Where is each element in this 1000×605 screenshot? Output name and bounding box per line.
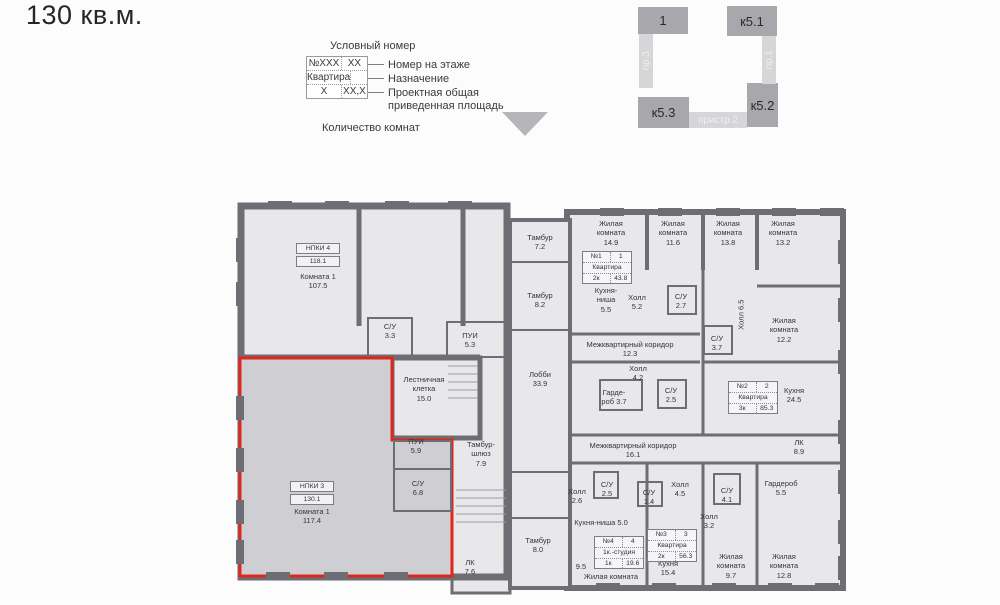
tag-num: №3 bbox=[648, 530, 676, 540]
tag-num: №1 bbox=[583, 252, 611, 262]
room-label: ЛК 8.9 bbox=[764, 438, 834, 457]
tag-designation: Квартира bbox=[583, 263, 631, 274]
tag-num: №4 bbox=[595, 537, 623, 547]
floorplan-drawing bbox=[0, 0, 1000, 605]
room-label: ПУИ 5.9 bbox=[381, 437, 451, 456]
room-label: ПУИ 5.3 bbox=[435, 331, 505, 350]
room-label: Жилая комната 13.2 bbox=[748, 219, 818, 247]
room-label: Тамбур 8.0 bbox=[503, 536, 573, 555]
room-label: Лестничная клетка 15.0 bbox=[389, 375, 459, 403]
tag-rooms: 3к bbox=[729, 404, 757, 414]
tag-designation: 1к.-студия bbox=[595, 548, 643, 559]
unit-area: 118.1 bbox=[296, 256, 340, 267]
room-label: Комната 1 107.5 bbox=[283, 272, 353, 291]
room-label: С/У 6.8 bbox=[383, 479, 453, 498]
tag-rooms: 2к bbox=[648, 552, 676, 562]
tag-count: 3 bbox=[676, 530, 696, 540]
tag-count: 4 bbox=[623, 537, 643, 547]
tag-area: 43.8 bbox=[611, 274, 631, 284]
tag-area: 56.3 bbox=[676, 552, 696, 562]
floorplan-page: 130 кв.м. Условный номер №XXX XX Квартир… bbox=[0, 0, 1000, 605]
tag-count: 1 bbox=[611, 252, 631, 262]
apartment-tag-3: №33 Квартира 2к56.3 bbox=[647, 529, 697, 562]
unit-tag-npki4: НПКИ 4 118.1 bbox=[296, 243, 340, 269]
tag-designation: Квартира bbox=[648, 541, 696, 552]
room-label: Жилая комната 12.8 bbox=[749, 552, 819, 580]
unit-area: 130.1 bbox=[290, 494, 334, 505]
room-label: ЛК 7.6 bbox=[435, 558, 505, 577]
tag-num: №2 bbox=[729, 382, 757, 392]
room-label: Кухня-ниша 5.0 bbox=[531, 518, 671, 527]
room-label: Комната 1 117.4 bbox=[277, 507, 347, 526]
room-label: С/У 3.3 bbox=[355, 322, 425, 341]
tag-area: 19.6 bbox=[623, 559, 643, 569]
room-label: С/У 3.7 bbox=[682, 334, 752, 353]
room-label: Лобби 33.9 bbox=[505, 370, 575, 389]
tag-area: 85.3 bbox=[757, 404, 777, 414]
tag-designation: Квартира bbox=[729, 393, 777, 404]
room-label: Тамбур 7.2 bbox=[505, 233, 575, 252]
room-label: С/У 2.7 bbox=[646, 292, 716, 311]
room-label: Холл 3.2 bbox=[674, 512, 744, 531]
room-label: Тамбур 8.2 bbox=[505, 291, 575, 310]
room-label: Межквартирный коридор 16.1 bbox=[563, 441, 703, 460]
unit-name: НПКИ 3 bbox=[290, 481, 334, 492]
tag-rooms: 2к bbox=[583, 274, 611, 284]
tag-rooms: 1к bbox=[595, 559, 623, 569]
unit-tag-npki3: НПКИ 3 130.1 bbox=[290, 481, 334, 507]
room-label: Холл 4.2 bbox=[603, 364, 673, 383]
apartment-tag-2: №22 Квартира 3к85.3 bbox=[728, 381, 778, 414]
room-label: Жилая комната 14.9 bbox=[576, 219, 646, 247]
room-label: С/У 2.5 bbox=[636, 386, 706, 405]
apartment-tag-4: №44 1к.-студия 1к19.6 bbox=[594, 536, 644, 569]
tag-count: 2 bbox=[757, 382, 777, 392]
room-label: Тамбур- шлюз 7.9 bbox=[446, 440, 516, 468]
unit-name: НПКИ 4 bbox=[296, 243, 340, 254]
room-label: Жилая комната 12.2 bbox=[749, 316, 819, 344]
apartment-tag-1: №11 Квартира 2к43.8 bbox=[582, 251, 632, 284]
room-label: Межквартирный коридор 12.3 bbox=[560, 340, 700, 359]
room-label: Гардероб 5.5 bbox=[746, 479, 816, 498]
